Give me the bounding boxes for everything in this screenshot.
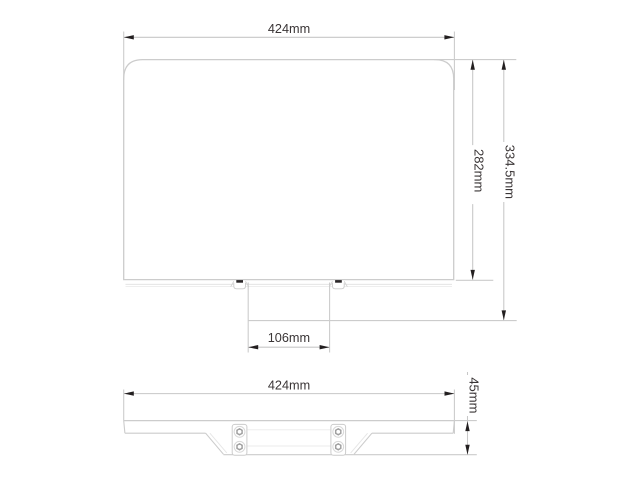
svg-text:424mm: 424mm [268,379,310,393]
svg-text:424mm: 424mm [268,22,310,36]
svg-text:106mm: 106mm [268,331,310,345]
svg-text:282mm: 282mm [472,149,487,192]
svg-text:334.5mm: 334.5mm [503,145,518,199]
svg-text:45mm: 45mm [466,377,481,413]
